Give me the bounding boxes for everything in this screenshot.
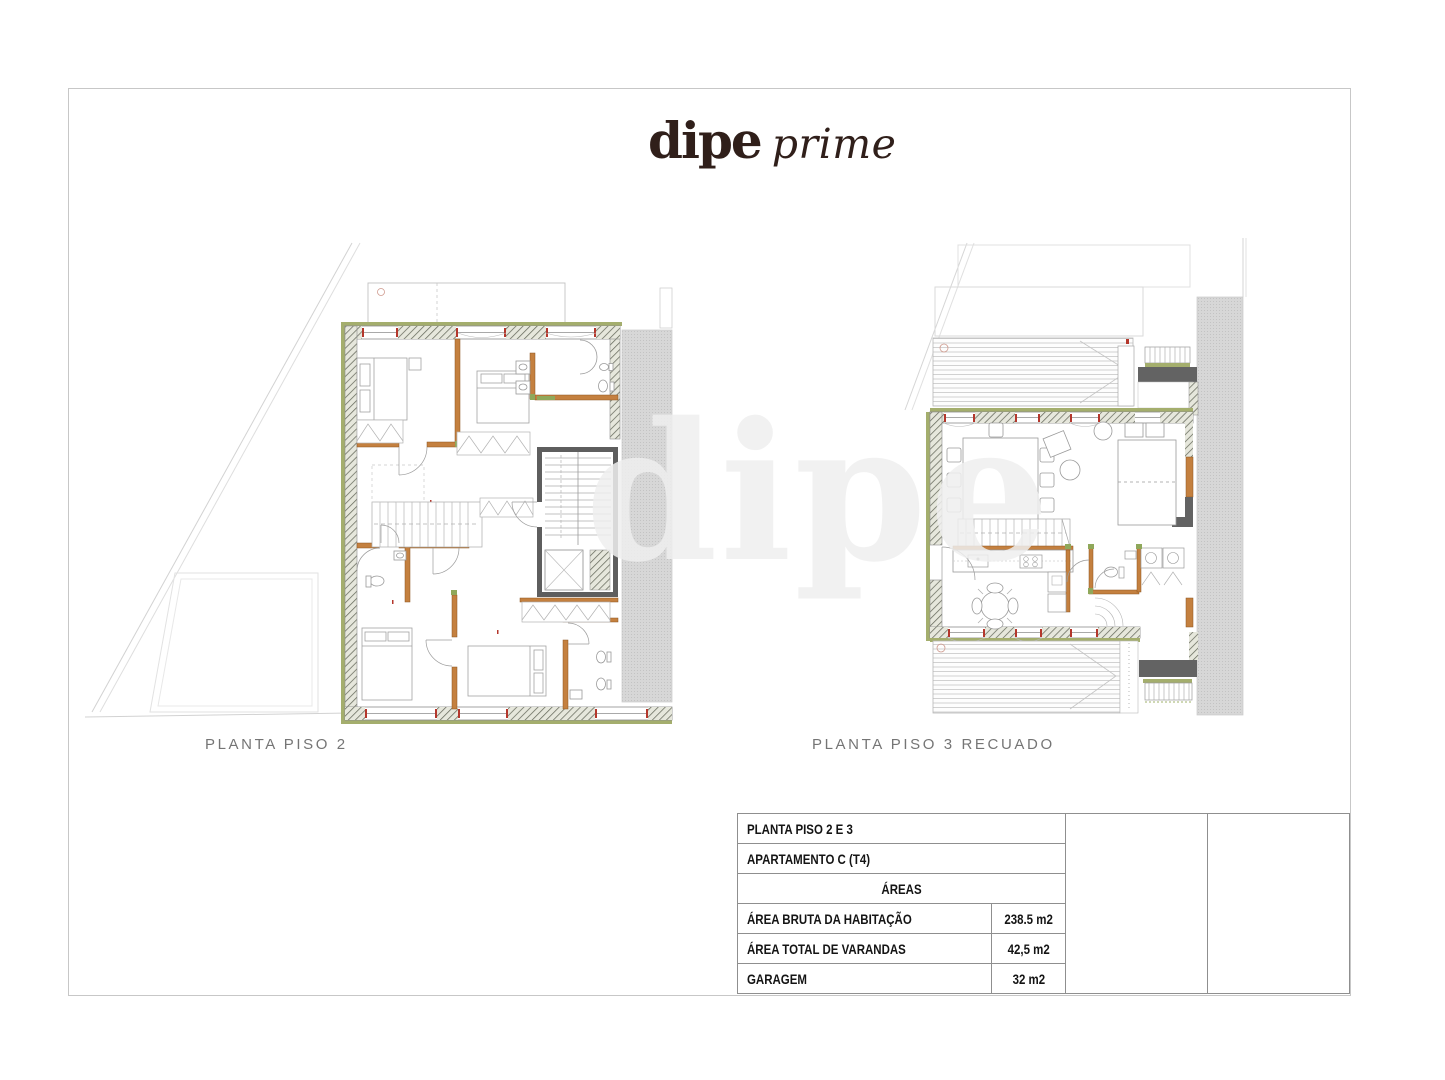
brand-logo: dipe prime [648, 116, 896, 166]
plan-label-piso2: PLANTA PISO 2 [205, 736, 348, 753]
table-section-header-text: ÁREAS [881, 881, 921, 897]
plan-label-piso3: PLANTA PISO 3 RECUADO [812, 736, 1055, 753]
floor-plan-piso3 [890, 235, 1275, 760]
brand-suffix: prime [772, 124, 897, 165]
table-row-value: 42,5 m2 [991, 933, 1066, 964]
table-row-value: 238.5 m2 [991, 903, 1066, 934]
table-row-label: GARAGEM [737, 963, 992, 994]
balcony [368, 283, 565, 327]
area-label: GARAGEM [747, 971, 807, 987]
stairs-top-right [1138, 347, 1198, 415]
lounge-furniture [1043, 422, 1176, 525]
brand-name: dipe [648, 116, 761, 166]
area-value: 42,5 m2 [1007, 941, 1049, 957]
area-label: ÁREA BRUTA DA HABITAÇÃO [747, 911, 912, 927]
terrace-bottom [933, 641, 1138, 713]
table-title-2-text: APARTAMENTO C (T4) [747, 851, 870, 867]
bathrooms-right [1089, 548, 1184, 626]
table-row-label: ÁREA TOTAL DE VARANDAS [737, 933, 992, 964]
area-value: 238.5 m2 [1004, 911, 1053, 927]
table-row-label: ÁREA BRUTA DA HABITAÇÃO [737, 903, 992, 934]
stairs-duplex [372, 465, 482, 547]
area-label: ÁREA TOTAL DE VARANDAS [747, 941, 906, 957]
table-title-1-text: PLANTA PISO 2 E 3 [747, 821, 853, 837]
table-row-title-1: PLANTA PISO 2 E 3 [737, 813, 1066, 844]
round-table [972, 583, 1018, 629]
stair-core [537, 447, 618, 597]
page: { "brand": { "name": "dipe", "suffix": "… [0, 0, 1445, 1080]
terrace-top [933, 338, 1134, 406]
site-boundary-lines [85, 243, 360, 717]
table-empty-column-1 [1065, 813, 1208, 994]
stairs-interior [958, 519, 1070, 547]
area-value: 32 m2 [1012, 971, 1045, 987]
table-row-value: 32 m2 [991, 963, 1066, 994]
table-row-title-2: APARTAMENTO C (T4) [737, 843, 1066, 874]
areas-table: PLANTA PISO 2 E 3 APARTAMENTO C (T4) ÁRE… [737, 813, 1350, 994]
floor-plan-piso2 [80, 235, 690, 760]
neighbor-building-left [622, 288, 672, 702]
stairs-bottom-right [1139, 660, 1197, 702]
table-empty-column-2 [1207, 813, 1350, 994]
neighbor-building-right [1197, 297, 1243, 715]
table-section-header: ÁREAS [737, 873, 1066, 904]
